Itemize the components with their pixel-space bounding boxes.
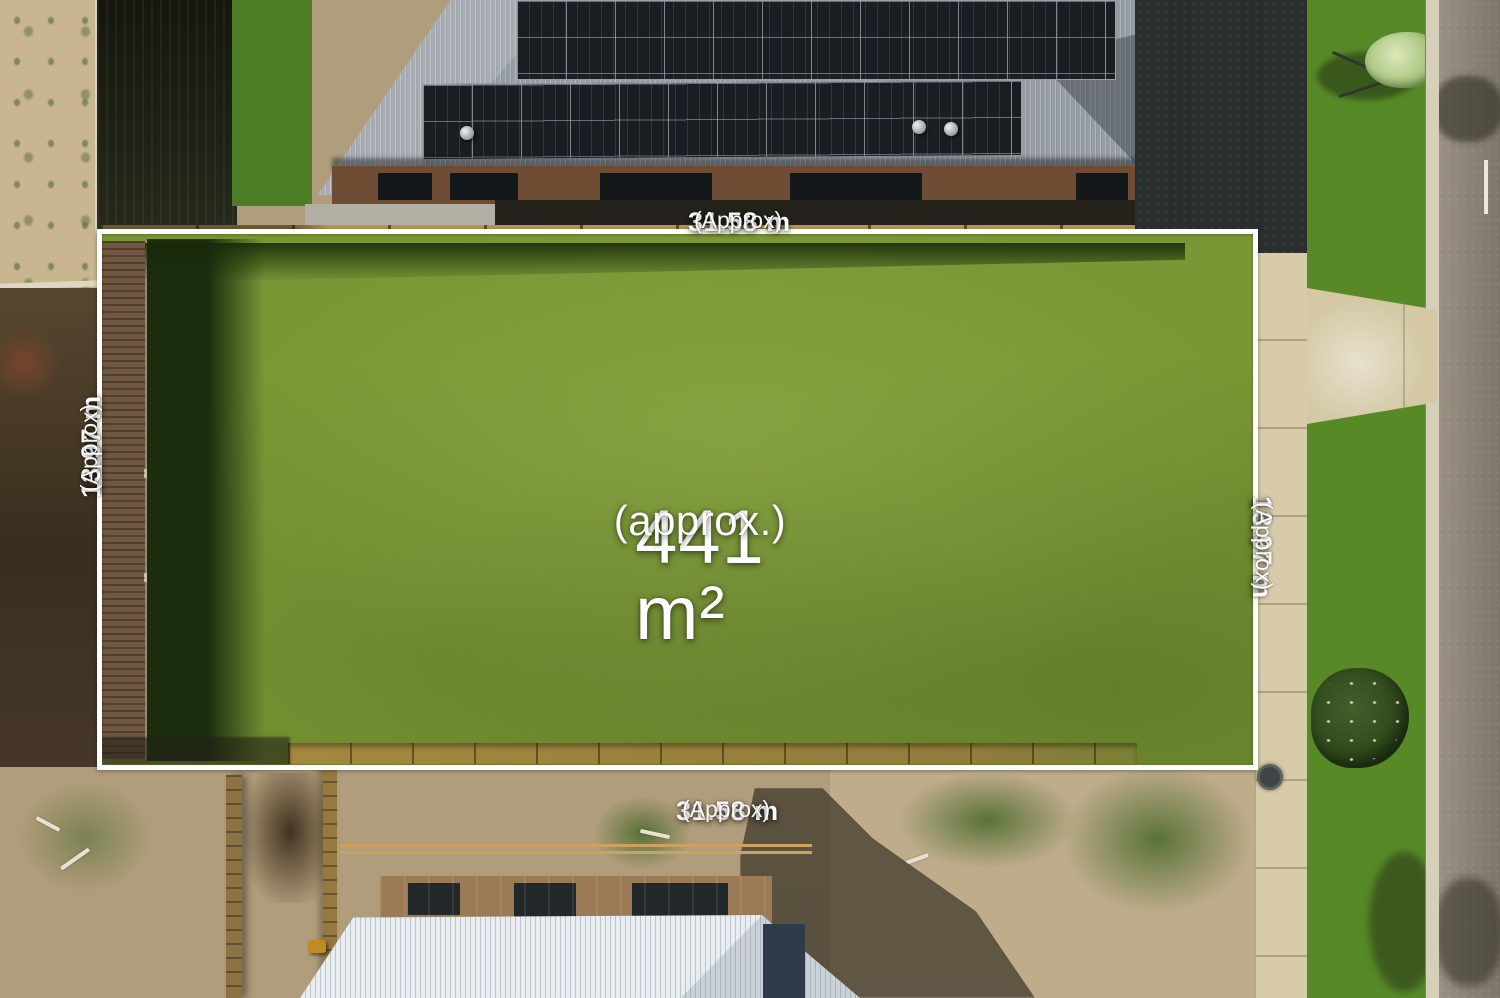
window bbox=[790, 173, 922, 200]
dimension-qualifier: (Approx) bbox=[1250, 502, 1277, 590]
nature-strip-grass bbox=[1307, 0, 1437, 998]
window bbox=[600, 173, 712, 200]
road-edge-line bbox=[1484, 160, 1488, 214]
frame-opening bbox=[514, 883, 576, 917]
roof-vent bbox=[912, 120, 926, 134]
aerial-photo-scene: 31.58 m(Approx) 31.58 m(Approx) 13.97 m(… bbox=[0, 0, 1500, 998]
concrete-footpath bbox=[1255, 253, 1307, 998]
frame-opening bbox=[408, 883, 460, 915]
dimension-qualifier: (Approx) bbox=[76, 404, 103, 492]
neighbour-dark-yard bbox=[95, 0, 237, 233]
roof-vent bbox=[460, 126, 474, 140]
weed-cluster bbox=[20, 782, 150, 892]
solar-panel-array-upper bbox=[516, 0, 1116, 80]
shrub bbox=[1311, 668, 1409, 768]
brick-soil-patch bbox=[0, 328, 60, 398]
dimension-qualifier: (Approx) bbox=[694, 207, 782, 234]
neighbour-house-top bbox=[300, 0, 1270, 220]
construction-house bbox=[300, 840, 860, 998]
road-curb bbox=[1425, 0, 1439, 998]
frame-opening bbox=[632, 883, 728, 919]
dimension-qualifier: (Approx) bbox=[682, 796, 770, 823]
window bbox=[450, 173, 518, 200]
area-qualifier: (approx.) bbox=[614, 500, 787, 542]
weed-cluster bbox=[1065, 767, 1250, 912]
roof-vent bbox=[944, 122, 958, 136]
tree-shadow-on-road bbox=[1435, 878, 1500, 986]
tree-shadow-on-road bbox=[1433, 76, 1500, 142]
side-timber-fence bbox=[226, 775, 242, 998]
window bbox=[1076, 173, 1128, 200]
timber-frame bbox=[380, 876, 772, 922]
roof-trusses bbox=[340, 842, 812, 855]
driveway-crossover bbox=[1307, 288, 1437, 424]
dark-asphalt-driveway bbox=[1135, 0, 1310, 254]
road-asphalt bbox=[1437, 0, 1500, 998]
sandy-yard-top-left bbox=[0, 0, 100, 290]
solar-panel-array-lower bbox=[422, 80, 1022, 160]
dark-roof-section bbox=[763, 924, 805, 998]
dark-soil-left bbox=[0, 288, 100, 768]
window bbox=[378, 173, 432, 200]
manhole-cover bbox=[1257, 764, 1283, 790]
excavator bbox=[308, 940, 326, 953]
